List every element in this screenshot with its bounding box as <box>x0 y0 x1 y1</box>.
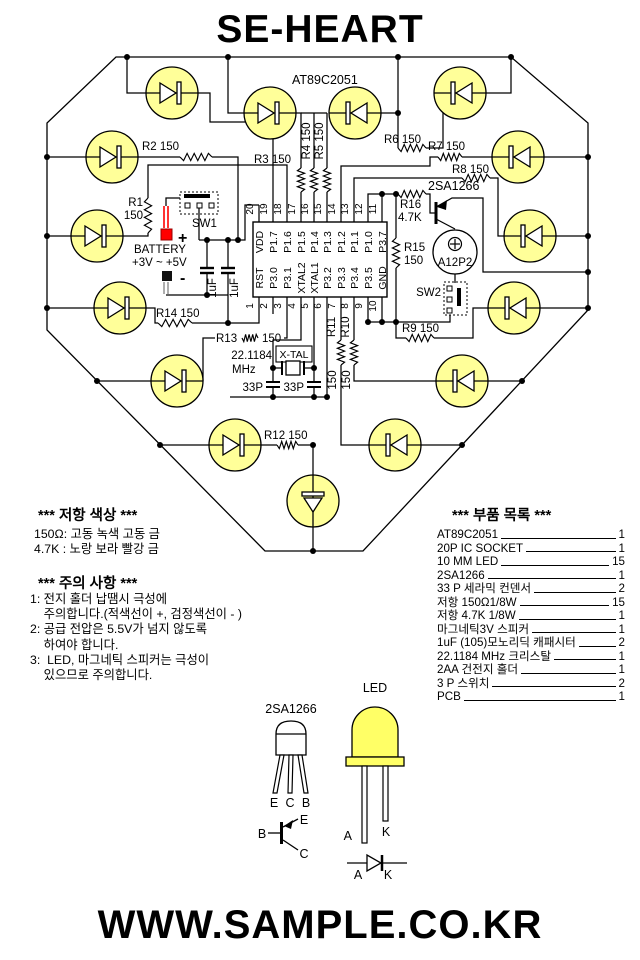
sw1-label: SW1 <box>192 218 217 230</box>
svg-text:R2 150: R2 150 <box>142 141 179 153</box>
junction-dot <box>585 233 591 239</box>
junction-dot <box>585 269 591 275</box>
ic-pin-label: P1.3 <box>322 231 334 253</box>
ic-pin-label: P1.6 <box>282 231 294 253</box>
junction-dot <box>270 365 276 371</box>
part-row: 2AA 건전지 홀더1 <box>437 663 625 677</box>
website-footer: WWW.SAMPLE.CO.KR <box>0 903 640 948</box>
junction-dot <box>124 54 130 60</box>
leader-line <box>519 619 616 620</box>
ic-pin-label: P3.1 <box>282 267 294 289</box>
part-name: AT89C2051 <box>437 528 498 542</box>
note-line: 주의합니다.(적색선이 +, 검정색선이 - ) <box>30 607 242 622</box>
svg-text:R13: R13 <box>216 333 237 345</box>
part-qty: 1 <box>619 528 625 542</box>
svg-text:C: C <box>285 796 294 810</box>
junction-dot <box>508 54 514 60</box>
leader-line <box>501 538 616 539</box>
resistor-r4 <box>310 168 317 192</box>
part-row: 3 P 스위치2 <box>437 677 625 691</box>
leader-line <box>534 592 615 593</box>
part-name: 저항 4.7K 1/8W <box>437 609 516 623</box>
svg-text:R10: R10 <box>340 316 352 337</box>
svg-text:R9 150: R9 150 <box>402 323 439 335</box>
ic-pin-label: P3.7 <box>377 231 389 253</box>
svg-text:R16: R16 <box>400 199 421 211</box>
sw2-label: SW2 <box>416 287 441 299</box>
resistor-r11 <box>337 340 344 365</box>
part-qty: 2 <box>619 582 625 596</box>
ic-pin-label: P3.5 <box>363 267 375 289</box>
ic-pin-label: XTAL1 <box>309 262 321 293</box>
svg-text:E: E <box>300 813 308 827</box>
switch-sw2: SW2 <box>416 282 467 315</box>
part-name: 22.1184 MHz 크리스탈 <box>437 650 551 664</box>
battery-minus-sign: - <box>180 270 185 287</box>
ic-pin-label: 5 <box>300 303 311 309</box>
resistor-r5 <box>323 168 330 192</box>
svg-text:150: 150 <box>341 370 353 389</box>
part-row: 저항 150Ω1/8W15 <box>437 596 625 610</box>
ic-pin-label: 15 <box>313 203 324 215</box>
junction-dot <box>585 305 591 311</box>
parts-list-title: *** 부품 목록 *** <box>452 504 551 525</box>
part-row: 2SA12661 <box>437 569 625 583</box>
note-line: 4.7K : 노랑 보라 빨강 금 <box>34 542 160 557</box>
svg-text:150: 150 <box>124 210 143 222</box>
ic-pin-label: P1.4 <box>309 231 321 253</box>
junction-dot <box>270 394 276 400</box>
ic-pin-label: P3.4 <box>349 267 361 289</box>
leader-line <box>554 659 616 660</box>
led-1 <box>146 67 198 119</box>
ic-pin-label: XTAL2 <box>296 262 308 293</box>
part-row: PCB1 <box>437 690 625 704</box>
part-qty: 1 <box>619 609 625 623</box>
ic-pin-label: 10 <box>368 300 379 312</box>
cap-1uf-label: 1uF <box>229 278 241 298</box>
led-11 <box>151 355 203 407</box>
mcu-label: AT89C2051 <box>292 73 358 87</box>
note-line: 하여야 합니다. <box>30 638 242 653</box>
ic-pin-label: 12 <box>354 203 365 215</box>
junction-dot <box>225 54 231 60</box>
part-qty: 1 <box>619 542 625 556</box>
ic-pin-label: 4 <box>287 303 298 309</box>
leader-line <box>532 632 615 633</box>
junction-dot <box>225 320 231 326</box>
resistor-r14 <box>158 319 192 326</box>
part-name: 저항 150Ω1/8W <box>437 596 517 610</box>
part-qty: 1 <box>619 569 625 583</box>
resistor-r10 <box>350 340 357 365</box>
junction-dot <box>311 365 317 371</box>
resistor-r16 <box>398 190 426 197</box>
svg-text:150: 150 <box>404 255 423 267</box>
part-qty: 15 <box>612 555 625 569</box>
svg-text:A: A <box>344 829 353 843</box>
led-9 <box>94 282 146 334</box>
svg-text:R4 150: R4 150 <box>301 122 313 159</box>
part-name: 1uF (105)모노리딕 캐패시터 <box>437 636 576 650</box>
part-name: 20P IC SOCKET <box>437 542 523 556</box>
ic-pin-label: P1.1 <box>349 231 361 253</box>
ic-pin-label: 2 <box>259 303 270 309</box>
svg-text:150: 150 <box>327 370 339 389</box>
transistor-drawing-label: 2SA1266 <box>265 702 316 716</box>
svg-text:R7 150: R7 150 <box>428 141 465 153</box>
note-line: 150Ω: 고동 녹색 고동 금 <box>34 527 160 542</box>
speaker-label: A12P2 <box>438 257 473 269</box>
resistor-colors-title: *** 저항 색상 *** <box>38 504 137 525</box>
ic-pin-label: P1.7 <box>268 231 280 253</box>
ic-pin-label: P1.2 <box>336 231 348 253</box>
led-7 <box>71 210 123 262</box>
xtal-unit: MHz <box>232 364 256 376</box>
ic-pin-label: 20 <box>245 203 256 215</box>
note-line: 1: 전지 홀더 납땜시 극성에 <box>30 592 242 607</box>
part-qty: 2 <box>619 677 625 691</box>
part-qty: 15 <box>612 596 625 610</box>
transistor-label: 2SA1266 <box>428 179 479 193</box>
resistor-r1 <box>144 198 151 233</box>
part-row: 1uF (105)모노리딕 캐패시터2 <box>437 636 625 650</box>
part-row: 마그네틱3V 스피커1 <box>437 623 625 637</box>
svg-text:R15: R15 <box>404 242 425 254</box>
part-row: 20P IC SOCKET1 <box>437 542 625 556</box>
caution-title: *** 주의 사항 *** <box>38 572 137 593</box>
battery-label: BATTERY <box>134 244 186 256</box>
junction-dot <box>44 305 50 311</box>
caution-lines: 1: 전지 홀더 납땜시 극성에 주의합니다.(적색선이 +, 검정색선이 - … <box>30 592 242 683</box>
part-name: 33 P 세라믹 컨덴서 <box>437 582 531 596</box>
leader-line <box>520 605 609 606</box>
cap-33p-label: 33P <box>284 382 305 394</box>
svg-text:A: A <box>354 868 363 882</box>
ic-pin-label: 18 <box>273 203 284 215</box>
svg-text:B: B <box>302 796 310 810</box>
ic-pin-label: GND <box>377 266 389 290</box>
xtal-name: X-TAL <box>280 349 309 361</box>
xtal-freq: 22.1184 <box>231 350 272 362</box>
led-drawing: LED A K A K <box>344 681 407 882</box>
junction-dot <box>44 154 50 160</box>
ic-chip: 20VDD1RST19P1.72P3.018P1.63P3.117P1.54XT… <box>245 203 389 314</box>
ic-pin-label: 13 <box>340 203 351 215</box>
battery-positive-wire <box>164 206 168 228</box>
junction-dot <box>157 442 163 448</box>
part-qty: 1 <box>619 650 625 664</box>
junction-dot <box>393 319 399 325</box>
junction-dot <box>395 110 401 116</box>
junction-dot <box>379 191 385 197</box>
ic-pin-label: P1.5 <box>296 231 308 253</box>
part-name: 2SA1266 <box>437 569 485 583</box>
junction-dot <box>310 548 316 554</box>
part-qty: 1 <box>619 623 625 637</box>
transistor-symbol: 2SA1266 <box>428 179 479 224</box>
part-name: PCB <box>437 690 461 704</box>
resistor-colors-lines: 150Ω: 고동 녹색 고동 금 4.7K : 노랑 보라 빨강 금 <box>34 527 160 557</box>
ic-pin-label: 11 <box>368 203 379 214</box>
leader-line <box>488 578 616 579</box>
note-line: 있으므로 주의합니다. <box>30 668 242 683</box>
battery-positive-terminal <box>161 229 172 240</box>
led-5 <box>86 131 138 183</box>
battery-negative-terminal <box>162 271 172 281</box>
part-row: 33 P 세라믹 컨덴서2 <box>437 582 625 596</box>
ic-pin-label: P3.0 <box>268 267 280 289</box>
junction-dot <box>393 191 399 197</box>
note-line: 3: LED, 마그네틱 스피커는 극성이 <box>30 653 242 668</box>
ic-pin-label: 7 <box>327 303 338 309</box>
ic-pin-label: 8 <box>340 303 351 309</box>
led-2 <box>244 87 296 139</box>
led-15 <box>287 475 339 527</box>
ic-pin-label: 1 <box>245 303 256 309</box>
svg-text:R8 150: R8 150 <box>452 164 489 176</box>
parts-list: AT89C2051120P IC SOCKET110 MM LED152SA12… <box>437 528 625 704</box>
led-3 <box>329 87 381 139</box>
ic-pin-label: 17 <box>287 203 298 215</box>
led-8 <box>504 210 556 262</box>
part-name: 10 MM LED <box>437 555 498 569</box>
battery-range: +3V ~ +5V <box>132 257 187 269</box>
junction-dot <box>459 442 465 448</box>
junction-dot <box>585 154 591 160</box>
junction-dot <box>379 319 385 325</box>
part-qty: 1 <box>619 690 625 704</box>
ic-pin-label: 14 <box>327 203 338 215</box>
junction-dot <box>94 378 100 384</box>
junction-dot <box>204 237 210 243</box>
part-row: 10 MM LED15 <box>437 555 625 569</box>
part-row: 22.1184 MHz 크리스탈1 <box>437 650 625 664</box>
part-name: 3 P 스위치 <box>437 677 489 691</box>
led-13 <box>209 419 261 471</box>
crystal: X-TAL 22.1184 MHz 33P 33P <box>231 346 321 394</box>
junction-dot <box>44 233 50 239</box>
svg-text:C: C <box>299 847 308 861</box>
leader-line <box>526 551 615 552</box>
resistor-r3 <box>297 168 304 192</box>
led-14 <box>369 419 421 471</box>
transistor-drawing: 2SA1266 E C B B E C <box>258 702 317 861</box>
ic-pin-label: VDD <box>254 230 266 253</box>
junction-dot <box>235 237 241 243</box>
resistor-r12 <box>277 441 298 448</box>
battery-negative-wire <box>164 282 168 294</box>
note-line: 2: 공급 전압은 5.5V가 넘지 않도록 <box>30 622 242 637</box>
ic-pin-label: 9 <box>354 303 365 309</box>
svg-text:B: B <box>258 827 266 841</box>
schematic-page: SE-HEART <box>0 0 640 960</box>
svg-text:K: K <box>384 868 393 882</box>
leader-line <box>464 700 616 701</box>
svg-text:R11: R11 <box>326 317 338 337</box>
part-qty: 2 <box>619 636 625 650</box>
ic-pin-label: 19 <box>259 203 270 215</box>
svg-text:R14 150: R14 150 <box>156 308 199 320</box>
led-12 <box>436 355 488 407</box>
ic-pin-label: 16 <box>300 203 311 215</box>
junction-dot <box>519 378 525 384</box>
svg-text:150: 150 <box>262 333 281 345</box>
junction-dot <box>225 237 231 243</box>
resistor-r2 <box>180 153 212 160</box>
ic-pin-label: P3.3 <box>336 267 348 289</box>
led-drawing-label: LED <box>363 681 387 695</box>
junction-dot <box>395 54 401 60</box>
junction-dot <box>204 292 210 298</box>
led-4 <box>434 67 486 119</box>
cap-33p-label: 33P <box>243 382 264 394</box>
junction-dot <box>311 394 317 400</box>
part-qty: 1 <box>619 663 625 677</box>
junction-dot <box>310 442 316 448</box>
leader-line <box>492 686 615 687</box>
svg-text:E: E <box>270 796 278 810</box>
ic-pin-label: P3.2 <box>322 267 334 289</box>
resistor-r9 <box>406 334 434 341</box>
leader-line <box>521 673 615 674</box>
ic-pin-label: P1.0 <box>363 231 375 253</box>
svg-text:R3 150: R3 150 <box>254 154 291 166</box>
svg-text:R5 150: R5 150 <box>314 122 326 159</box>
led-10 <box>488 282 540 334</box>
ic-pin-label: 3 <box>273 303 284 309</box>
junction-dot <box>365 319 371 325</box>
part-name: 마그네틱3V 스피커 <box>437 623 529 637</box>
resistor-r7 <box>438 153 462 160</box>
svg-text:4.7K: 4.7K <box>398 212 422 224</box>
svg-text:R1: R1 <box>128 197 143 209</box>
junction-dot <box>324 394 330 400</box>
svg-text:R12 150: R12 150 <box>264 430 307 442</box>
part-row: AT89C20511 <box>437 528 625 542</box>
ic-pin-label: RST <box>254 267 266 289</box>
circuit-diagram: 20VDD1RST19P1.72P3.018P1.63P3.117P1.54XT… <box>0 0 640 960</box>
led-6 <box>492 131 544 183</box>
svg-text:R6 150: R6 150 <box>384 134 421 146</box>
svg-text:K: K <box>382 825 391 839</box>
leader-line <box>501 565 609 566</box>
resistor-r13 <box>242 334 258 341</box>
speaker: A12P2 <box>433 230 477 274</box>
leader-line <box>579 646 616 647</box>
part-row: 저항 4.7K 1/8W1 <box>437 609 625 623</box>
resistor-r15 <box>392 238 399 268</box>
ic-pin-label: 6 <box>313 303 324 309</box>
part-name: 2AA 건전지 홀더 <box>437 663 518 677</box>
